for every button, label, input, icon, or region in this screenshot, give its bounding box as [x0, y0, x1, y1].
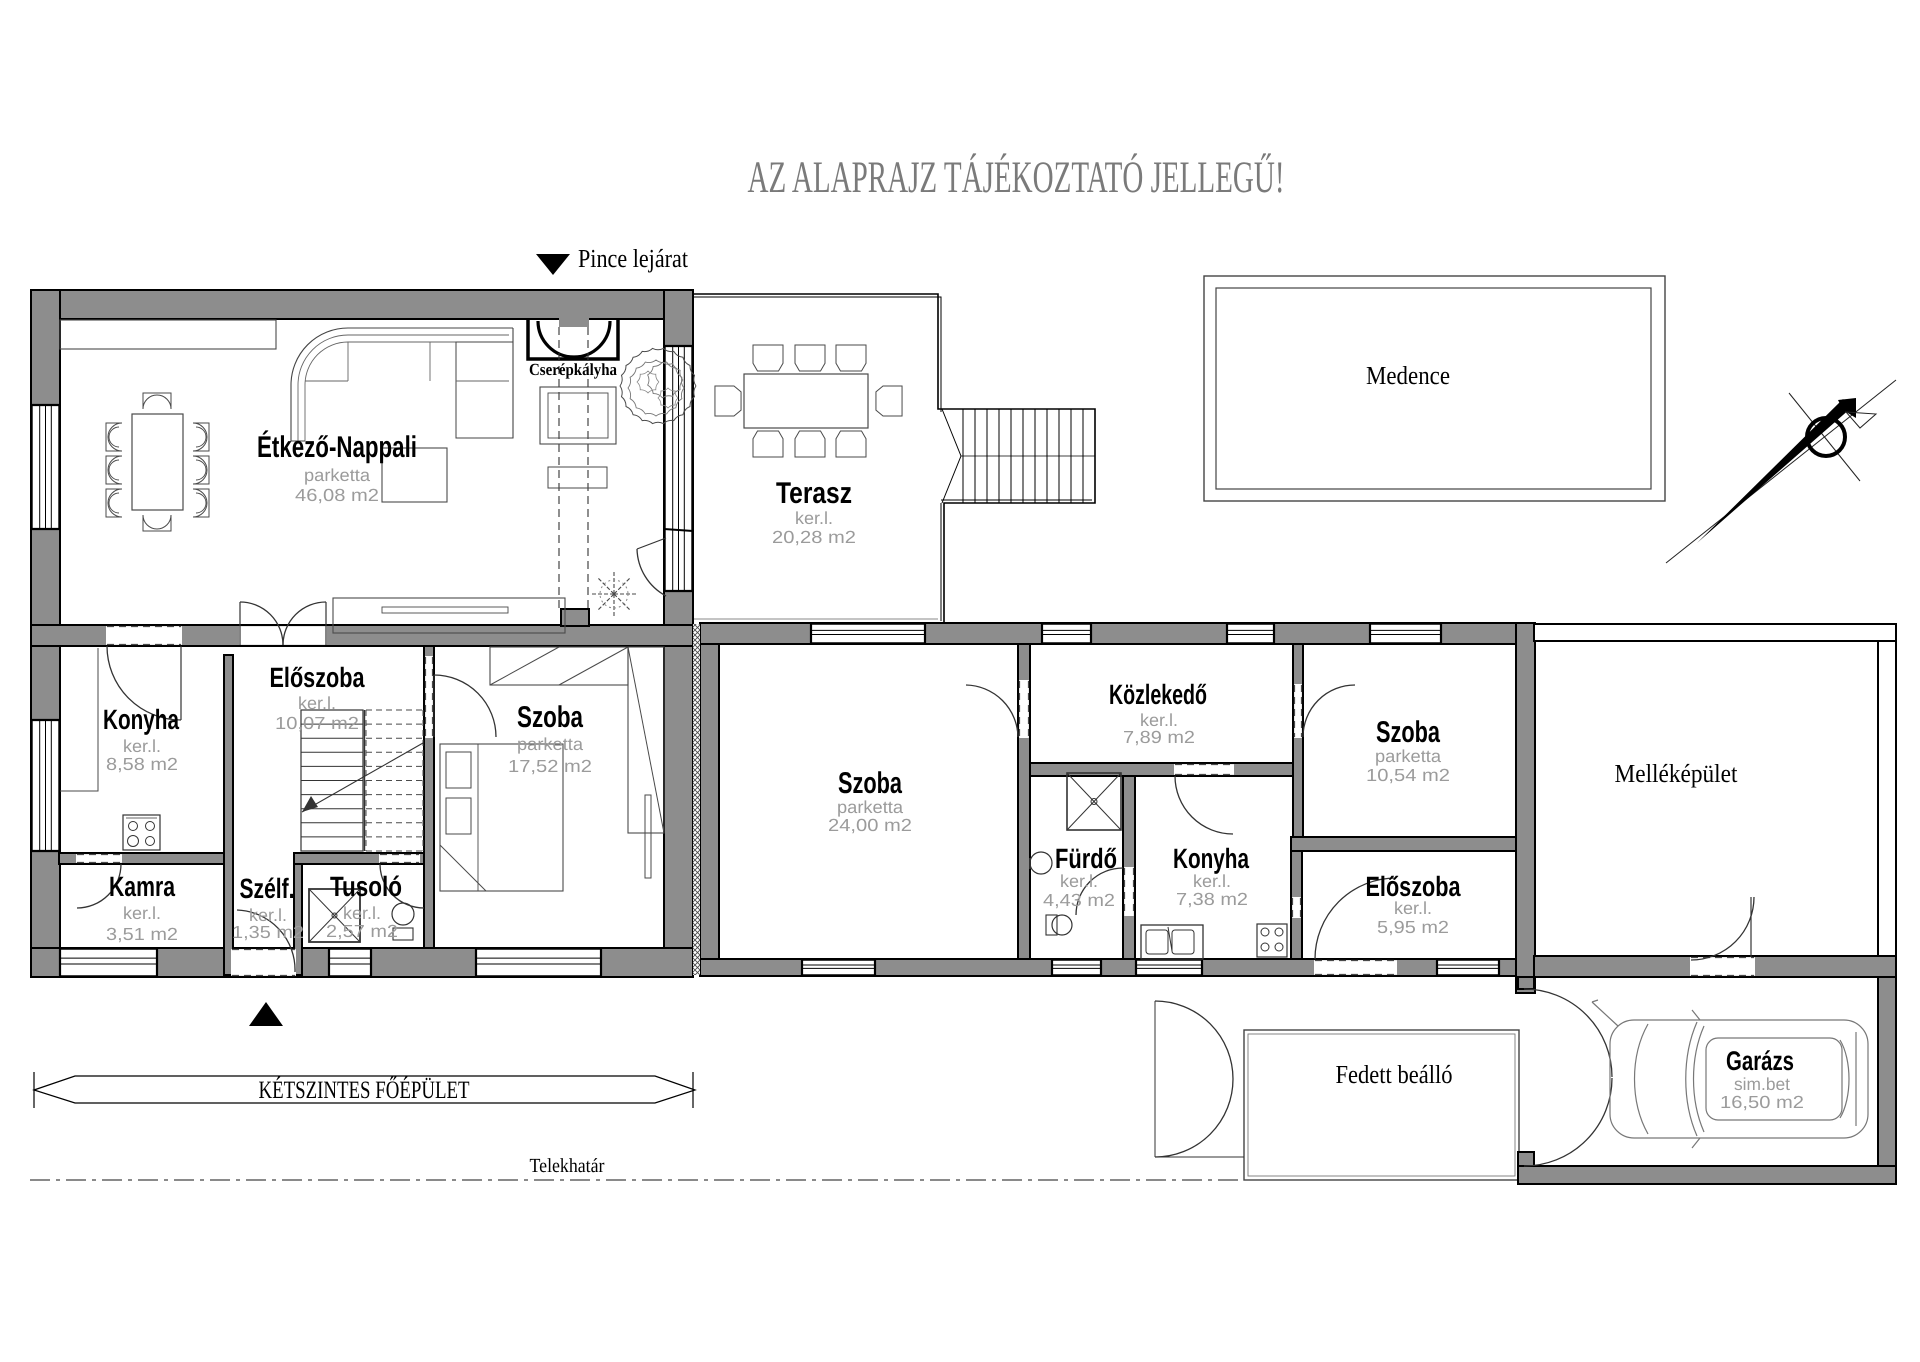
svg-text:Terasz: Terasz	[776, 477, 852, 510]
svg-text:Előszoba: Előszoba	[270, 662, 365, 693]
svg-text:AZ ALAPRAJZ TÁJÉKOZTATÓ JELLEG: AZ ALAPRAJZ TÁJÉKOZTATÓ JELLEGŰ!	[748, 152, 1285, 202]
svg-text:Szoba: Szoba	[1376, 716, 1440, 749]
svg-text:Pince lejárat: Pince lejárat	[578, 244, 689, 273]
svg-text:parketta: parketta	[837, 797, 903, 817]
svg-text:ker.l.: ker.l.	[123, 903, 161, 923]
svg-text:17,52 m2: 17,52 m2	[508, 756, 592, 776]
svg-text:Garázs: Garázs	[1726, 1046, 1794, 1076]
svg-text:Szélf.: Szélf.	[240, 873, 295, 904]
svg-text:Kamra: Kamra	[109, 871, 175, 902]
svg-text:parketta: parketta	[517, 734, 583, 754]
svg-text:Tusoló: Tusoló	[330, 871, 402, 902]
svg-text:ker.l.: ker.l.	[123, 736, 161, 756]
svg-text:Konyha: Konyha	[103, 704, 179, 735]
svg-text:46,08 m2: 46,08 m2	[295, 485, 379, 505]
svg-text:4,43 m2: 4,43 m2	[1043, 890, 1115, 910]
svg-text:7,89 m2: 7,89 m2	[1123, 727, 1195, 747]
svg-text:1,35 m2: 1,35 m2	[232, 922, 304, 942]
svg-text:ker.l.: ker.l.	[1193, 871, 1231, 891]
svg-text:sim.bet: sim.bet	[1734, 1074, 1790, 1094]
svg-text:Szoba: Szoba	[838, 767, 902, 800]
svg-text:Melléképület: Melléképület	[1615, 759, 1739, 788]
svg-text:3,51 m2: 3,51 m2	[106, 924, 178, 944]
svg-text:ker.l.: ker.l.	[795, 508, 833, 528]
svg-text:16,50 m2: 16,50 m2	[1720, 1092, 1804, 1112]
svg-text:ker.l.: ker.l.	[1394, 898, 1432, 918]
svg-text:20,28 m2: 20,28 m2	[772, 527, 856, 547]
svg-text:parketta: parketta	[304, 465, 370, 485]
svg-text:Konyha: Konyha	[1173, 843, 1249, 874]
svg-text:Étkező-Nappali: Étkező-Nappali	[257, 430, 417, 464]
svg-text:Szoba: Szoba	[517, 701, 583, 734]
svg-text:7,38 m2: 7,38 m2	[1176, 889, 1248, 909]
svg-text:parketta: parketta	[1375, 746, 1441, 766]
svg-text:10,54 m2: 10,54 m2	[1366, 765, 1450, 785]
svg-text:ker.l.: ker.l.	[343, 903, 381, 923]
svg-text:Telekhatár: Telekhatár	[530, 1155, 605, 1177]
svg-text:Medence: Medence	[1366, 361, 1450, 390]
svg-text:8,58 m2: 8,58 m2	[106, 754, 178, 774]
svg-text:ker.l.: ker.l.	[298, 693, 336, 713]
svg-text:10,07 m2: 10,07 m2	[275, 713, 359, 733]
svg-text:KÉTSZINTES FŐÉPÜLET: KÉTSZINTES FŐÉPÜLET	[259, 1076, 470, 1104]
svg-text:Közlekedő: Közlekedő	[1109, 679, 1207, 710]
svg-text:2,57 m2: 2,57 m2	[326, 921, 398, 941]
svg-text:5,95 m2: 5,95 m2	[1377, 917, 1449, 937]
svg-text:ker.l.: ker.l.	[1060, 871, 1098, 891]
svg-text:Cserépkályha: Cserépkályha	[529, 360, 617, 379]
svg-text:Fedett beálló: Fedett beálló	[1336, 1060, 1453, 1089]
svg-text:Fürdő: Fürdő	[1055, 843, 1117, 874]
svg-text:24,00 m2: 24,00 m2	[828, 815, 912, 835]
